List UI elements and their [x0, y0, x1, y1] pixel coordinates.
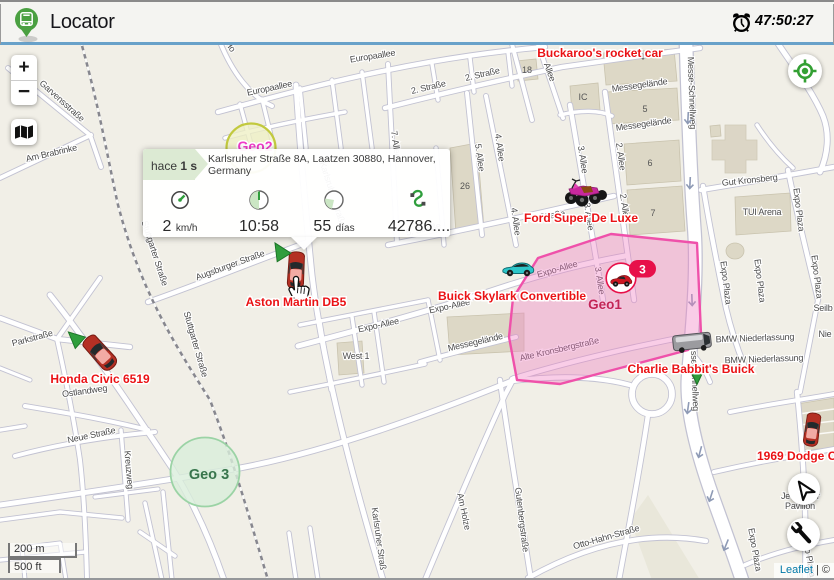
- svg-text:Ford Super De Luxe: Ford Super De Luxe: [524, 211, 638, 225]
- svg-text:Nie: Nie: [819, 329, 832, 339]
- svg-text:Seilb: Seilb: [813, 303, 832, 313]
- svg-text:3: 3: [639, 263, 646, 277]
- svg-text:5: 5: [642, 104, 647, 114]
- svg-text:6: 6: [647, 158, 652, 168]
- svg-text:TUI Arena: TUI Arena: [743, 207, 782, 217]
- svg-text:Geo1: Geo1: [588, 297, 622, 312]
- svg-text:26: 26: [460, 181, 470, 191]
- svg-text:Charlie Babbit's Buick: Charlie Babbit's Buick: [628, 362, 755, 376]
- svg-text:IC: IC: [579, 92, 589, 102]
- svg-text:7: 7: [650, 208, 655, 218]
- svg-text:West 1: West 1: [343, 351, 370, 361]
- svg-text:18: 18: [522, 65, 532, 75]
- svg-text:Honda Civic 6519: Honda Civic 6519: [50, 372, 150, 386]
- svg-text:1969 Dodge Charger: 1969 Dodge Charger: [757, 449, 834, 463]
- svg-text:Buick Skylark Convertible: Buick Skylark Convertible: [438, 289, 586, 303]
- svg-text:Aston Martin DB5: Aston Martin DB5: [246, 295, 347, 309]
- svg-text:Buckaroo's rocket car: Buckaroo's rocket car: [537, 46, 663, 60]
- svg-text:Geo 3: Geo 3: [189, 467, 229, 483]
